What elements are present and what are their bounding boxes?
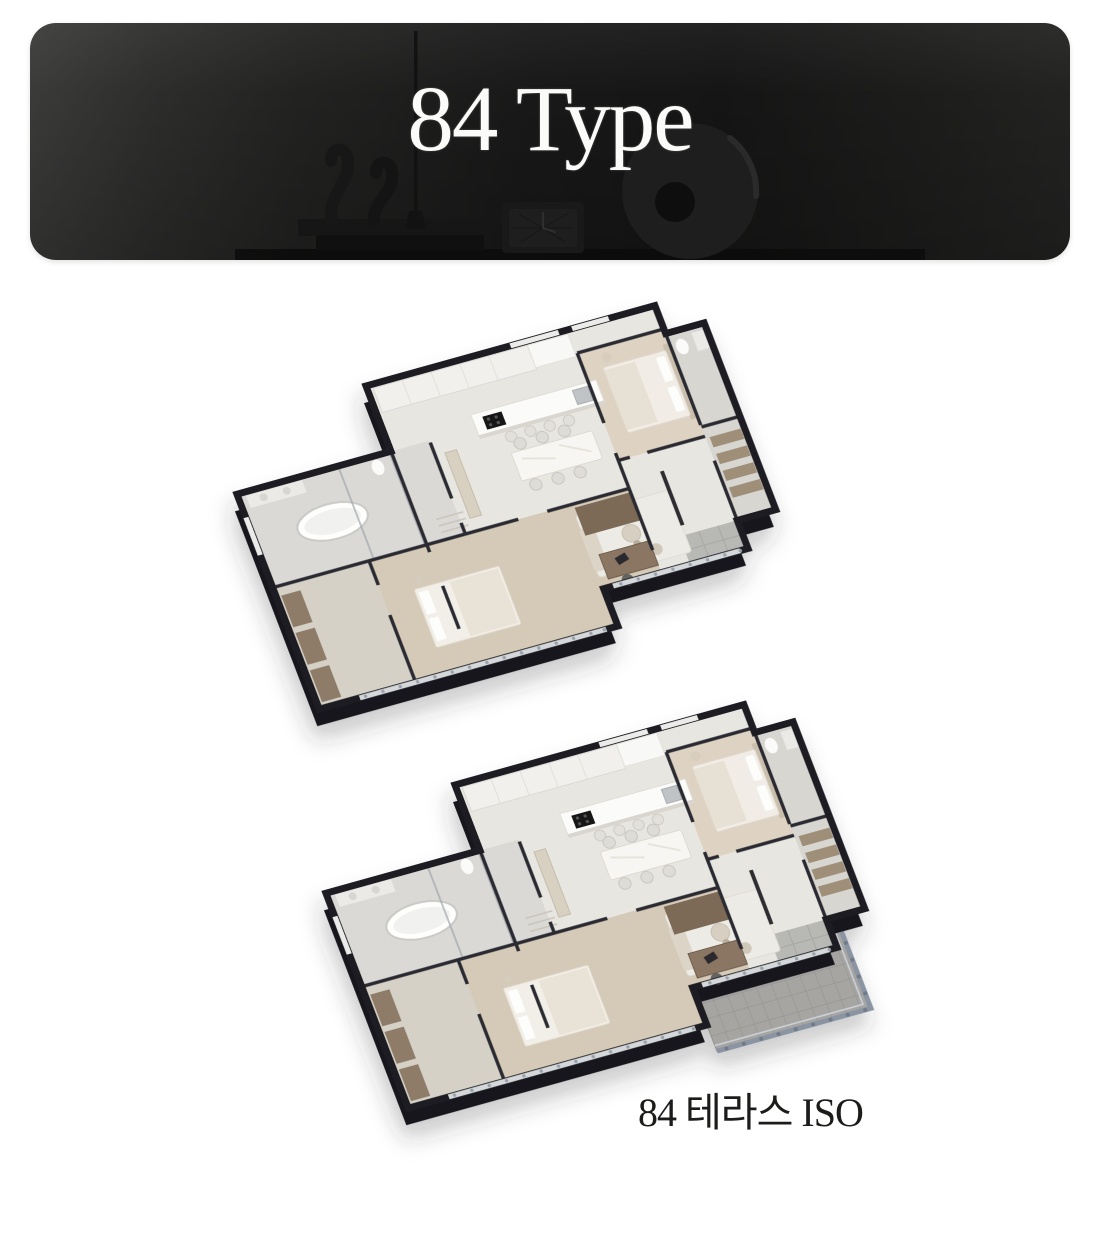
terrace-deck <box>682 916 874 1053</box>
floor-plan-84-iso <box>204 295 806 726</box>
caption-84-terrace-iso: 84 테라스 ISO <box>638 1091 863 1135</box>
book-stack-icon <box>298 219 484 250</box>
floor-plan-84-terrace-iso <box>293 694 900 1138</box>
table-clock-icon <box>502 202 584 253</box>
banner-title: 84 Type <box>30 73 1070 166</box>
terrace-railing-posts <box>692 924 873 1051</box>
type-84-banner: 84 Type <box>30 23 1070 260</box>
